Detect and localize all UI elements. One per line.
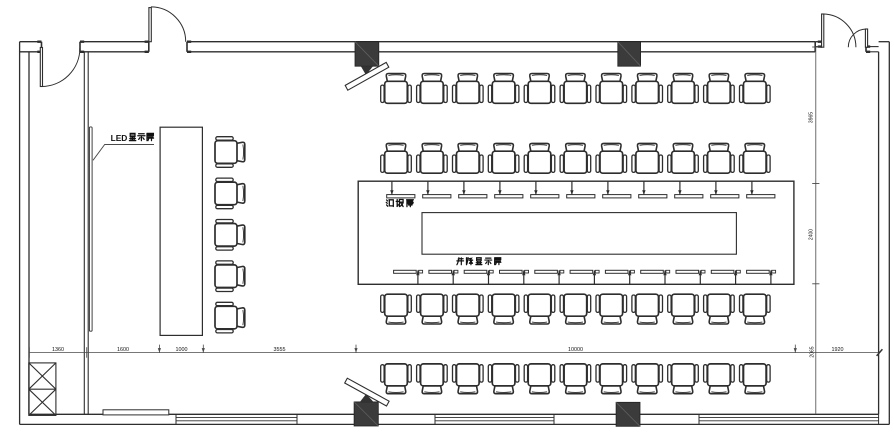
- svg-text:1360: 1360: [52, 347, 64, 353]
- svg-text:1920: 1920: [832, 347, 844, 353]
- svg-text:2400: 2400: [809, 229, 815, 240]
- svg-text:1600: 1600: [117, 347, 129, 353]
- svg-text:LED: LED: [111, 133, 128, 143]
- svg-text:10000: 10000: [568, 347, 583, 353]
- svg-text:2065: 2065: [810, 346, 816, 357]
- svg-text:3555: 3555: [274, 347, 286, 353]
- svg-text:1000: 1000: [176, 347, 188, 353]
- svg-text:3965: 3965: [809, 112, 815, 123]
